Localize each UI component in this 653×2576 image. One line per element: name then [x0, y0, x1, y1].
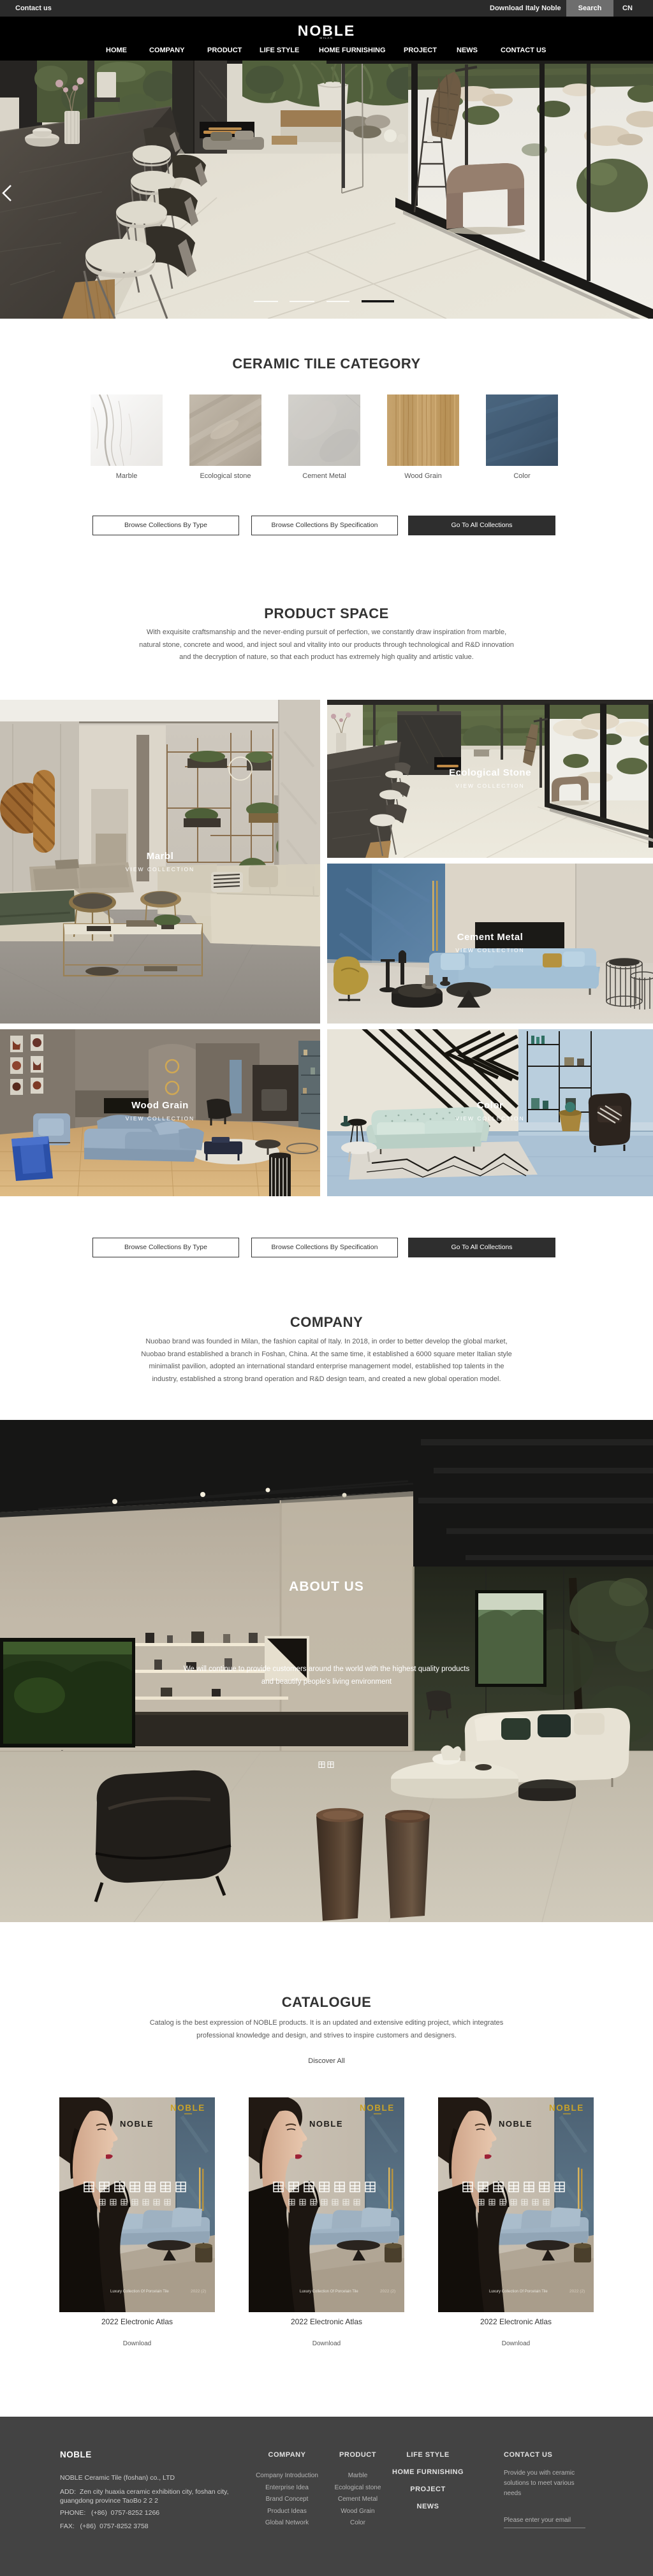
svg-text:Luxury Collection Of Porcelain: Luxury Collection Of Porcelain Tile [110, 2290, 169, 2294]
svg-text:2022 (2): 2022 (2) [569, 2289, 585, 2294]
svg-text:Luxury Collection Of Porcelain: Luxury Collection Of Porcelain Tile [489, 2290, 548, 2294]
svg-text:2022 (2): 2022 (2) [191, 2289, 206, 2294]
svg-text:NOBLE: NOBLE [120, 2119, 154, 2129]
svg-text:NOBLE: NOBLE [360, 2103, 395, 2113]
svg-text:NOBLE: NOBLE [170, 2103, 205, 2113]
svg-text:2022 (2): 2022 (2) [380, 2289, 395, 2294]
svg-text:NOBLE: NOBLE [309, 2119, 343, 2129]
svg-text:NOBLE: NOBLE [499, 2119, 532, 2129]
svg-text:Luxury Collection Of Porcelain: Luxury Collection Of Porcelain Tile [300, 2290, 358, 2294]
svg-text:NOBLE: NOBLE [549, 2103, 584, 2113]
